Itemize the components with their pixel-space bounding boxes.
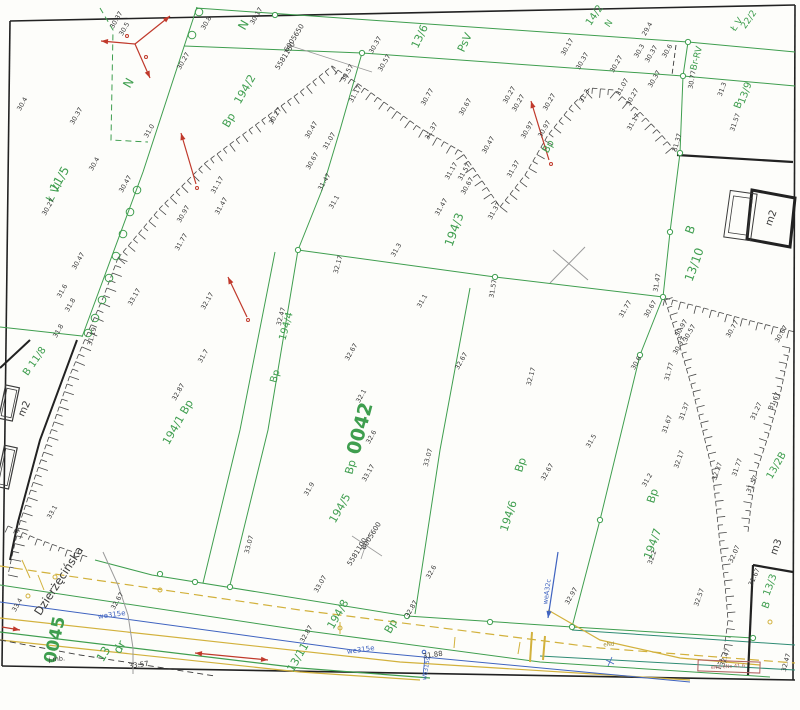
tree-circle	[126, 208, 134, 216]
map-label: 30.27	[267, 106, 283, 126]
slope-hatch-tick	[559, 121, 563, 124]
map-label: 30.47	[303, 120, 319, 140]
parcel-label: 194/5	[326, 491, 353, 525]
slope-hatch-tick	[725, 314, 727, 322]
boundary-node	[597, 517, 602, 522]
slope-hatch-tick	[655, 136, 662, 142]
map-label: 32.07	[727, 544, 742, 564]
slope-hatch-tick	[769, 417, 774, 418]
slope-hatch-tick	[718, 312, 719, 317]
slope-hatch-tick	[19, 528, 29, 530]
slope-hatch-tick	[199, 169, 203, 173]
map-label: 31.77	[663, 361, 676, 381]
boundary-node	[157, 571, 162, 576]
slope-hatch-tick	[682, 352, 687, 353]
slope-hatch-tick	[379, 102, 384, 109]
slope-hatch-tick	[703, 429, 708, 430]
slope-hatch-tick	[727, 629, 735, 630]
slope-hatch-tick	[708, 452, 716, 454]
map-line	[298, 250, 663, 297]
slope-hatch-tick	[28, 498, 37, 501]
slope-hatch-tick	[701, 421, 709, 423]
slope-hatch-tick	[714, 485, 722, 486]
slope-hatch-tick	[764, 424, 772, 426]
map-label: 30.77	[724, 319, 740, 339]
slope-hatch-tick	[50, 544, 52, 551]
slope-hatch-tick	[170, 198, 176, 204]
slope-hatch-tick	[58, 547, 60, 551]
boundary-node	[272, 12, 277, 17]
slope-hatch-tick	[112, 273, 121, 277]
map-label: 32.87	[403, 599, 419, 619]
map-label: 30.27	[541, 92, 557, 112]
parcel-label: 13/3	[762, 573, 780, 598]
map-label: 31.7	[196, 348, 210, 365]
map-label: 31.07	[614, 77, 630, 97]
map-label: 31.1	[415, 293, 429, 310]
slope-hatch-tick	[771, 327, 773, 335]
slope-hatch-tick	[694, 306, 696, 314]
map-label: 30.47	[117, 174, 133, 194]
slope-hatch-tick	[537, 154, 545, 158]
map-label: 32.67	[453, 351, 469, 371]
slope-hatch-tick	[779, 362, 787, 364]
slope-hatch-tick	[11, 559, 21, 561]
map-label: 30.37	[367, 35, 383, 55]
slope-hatch-tick	[780, 370, 785, 371]
slope-hatch-tick	[31, 490, 37, 492]
tree-circle	[188, 31, 196, 39]
map-line	[540, 656, 795, 670]
map-label: j.mb.	[47, 654, 65, 663]
map-label: Dzierżęcińska	[31, 544, 86, 618]
map-label: 31.37	[671, 132, 684, 152]
map-label: 31.2	[640, 472, 654, 489]
slope-hatch-tick	[217, 154, 222, 161]
map-label: 30.37	[646, 69, 662, 89]
map-label: 31.57	[745, 474, 760, 494]
symbol-circle	[26, 594, 30, 598]
slope-hatch-tick	[23, 513, 32, 516]
parcel-label: Bp	[382, 617, 401, 636]
slope-hatch-tick	[723, 572, 728, 573]
slope-hatch-tick	[20, 532, 23, 538]
slope-hatch-tick	[782, 346, 790, 348]
slope-hatch-tick	[653, 130, 657, 134]
map-label: 5581100	[346, 537, 369, 568]
slope-hatch-band	[665, 300, 728, 668]
slope-hatch-tick	[726, 596, 734, 597]
map-label: 31.17	[209, 175, 225, 195]
map-label: 32.17	[525, 366, 538, 386]
slope-hatch-tick	[727, 612, 735, 613]
symbol-circle	[126, 35, 129, 38]
slope-hatch-tick	[754, 454, 762, 457]
slope-hatch-tick	[686, 367, 691, 368]
map-line	[518, 642, 520, 654]
slope-hatch-tick	[154, 215, 158, 219]
slope-hatch-tick	[744, 526, 749, 527]
map-label: 31.6	[55, 283, 69, 300]
slope-hatch-tick	[433, 138, 437, 146]
map-line	[288, 45, 372, 72]
map-label: 32.17	[332, 254, 345, 274]
slope-hatch-tick	[500, 207, 507, 213]
map-label: 31.3	[716, 81, 728, 97]
map-line	[38, 575, 44, 590]
parcel-label: 194/8	[324, 597, 351, 631]
map-label: 31.47	[213, 196, 229, 216]
map-label: 32.27	[710, 461, 724, 481]
map-label: 32.6	[424, 564, 438, 581]
slope-hatch-tick	[484, 194, 491, 199]
slope-hatch-tick	[255, 125, 260, 132]
slope-hatch-tick	[230, 144, 235, 151]
slope-hatch-tick	[777, 386, 782, 387]
slope-hatch-tick	[709, 310, 711, 318]
map-line	[10, 340, 77, 560]
slope-hatch-tick	[313, 82, 317, 86]
slope-hatch-tick	[776, 378, 784, 380]
arrow-head	[546, 611, 551, 618]
parcel-label: 13/6	[409, 23, 431, 51]
slope-hatch-tick	[702, 308, 703, 313]
map-line	[2, 21, 10, 666]
slope-hatch-tick	[76, 362, 85, 366]
boundary-node	[227, 584, 232, 589]
slope-hatch-tick	[749, 321, 750, 326]
map-label: 31.3	[389, 242, 403, 259]
map-label: 31.8	[63, 297, 77, 314]
arrow-line	[181, 133, 196, 184]
slope-hatch-tick	[176, 192, 180, 196]
slope-hatch-tick	[123, 252, 127, 256]
slope-hatch-tick	[243, 135, 248, 142]
map-label: we315e	[97, 609, 126, 621]
map-line	[793, 5, 795, 680]
map-line	[0, 327, 82, 336]
map-label: 30.77	[686, 70, 697, 90]
slope-hatch-tick	[699, 414, 704, 415]
map-label: 31.9	[302, 481, 316, 498]
map-label: 33.17	[360, 463, 376, 483]
boundary-node	[685, 39, 690, 44]
map-label: eNd	[603, 642, 614, 649]
map-label: 29.4	[640, 21, 654, 38]
slope-hatch-tick	[400, 116, 403, 121]
map-label: 32.17	[672, 449, 686, 469]
slope-hatch-tick	[159, 209, 166, 215]
map-label: 30.6	[660, 43, 674, 60]
map-label: 30.5	[117, 21, 131, 38]
map-label: 30.27	[40, 197, 56, 217]
slope-hatch-tick	[663, 142, 667, 146]
map-line	[203, 252, 275, 583]
slope-hatch-tick	[46, 445, 52, 447]
slope-hatch-tick	[307, 87, 313, 94]
slope-hatch-tick	[36, 475, 42, 477]
parcel-label: N	[603, 18, 615, 29]
slope-hatch-tick	[505, 200, 509, 203]
slope-hatch-tick	[482, 187, 487, 190]
boundary-node	[295, 247, 300, 252]
parcel-label: 194/6	[498, 499, 520, 533]
slope-hatch-tick	[325, 72, 329, 76]
parcel-label: 194/3	[442, 211, 467, 248]
tree-circle	[195, 8, 203, 16]
slope-hatch-tick	[672, 321, 677, 323]
slope-hatch-band	[118, 66, 676, 258]
map-label: 31.67	[767, 391, 782, 411]
parcel-label: 194/1 Bp	[160, 397, 196, 447]
slope-hatch-tick	[695, 398, 700, 399]
map-line	[677, 155, 793, 162]
map-label: 31.47	[316, 172, 332, 192]
slope-hatch-tick	[41, 460, 47, 462]
slope-hatch-tick	[392, 111, 397, 118]
map-line	[663, 42, 688, 297]
slope-hatch-tick	[473, 174, 478, 177]
map-label: 30.97	[175, 204, 191, 224]
map-label: 31.67	[660, 414, 674, 434]
map-label: 33.17	[126, 287, 142, 307]
slope-hatch-tick	[35, 539, 37, 546]
slope-hatch-tick	[600, 89, 601, 98]
slope-hatch-tick	[667, 306, 672, 308]
symbol-circle	[550, 163, 553, 166]
slope-hatch-tick	[28, 536, 30, 540]
slope-hatch-tick	[455, 150, 458, 155]
map-label: 32.67	[539, 462, 555, 482]
slope-hatch-tick	[49, 437, 58, 440]
map-label: m3	[769, 538, 785, 557]
slope-hatch-tick	[98, 310, 104, 313]
boundary-node	[660, 294, 665, 299]
slope-hatch-tick	[82, 347, 91, 351]
slope-hatch-tick	[15, 544, 25, 546]
map-label: 30.4	[15, 96, 29, 113]
slope-hatch-tick	[684, 359, 692, 361]
parcel-label: N	[120, 76, 137, 91]
map-label: 30.37	[574, 51, 590, 71]
slope-hatch-tick	[554, 128, 561, 134]
parcel-label: 194/2	[231, 72, 258, 106]
boundary-node	[750, 635, 755, 640]
slope-hatch-tick	[549, 134, 553, 137]
slope-hatch-tick	[456, 155, 463, 160]
slope-hatch-tick	[670, 313, 678, 315]
slope-hatch-tick	[319, 77, 325, 84]
slope-hatch-tick	[679, 302, 681, 310]
slope-hatch-tick	[743, 502, 751, 503]
slope-hatch-tick	[387, 107, 390, 112]
map-label: 30.67	[304, 151, 320, 171]
slope-hatch-tick	[133, 240, 137, 244]
boundary-node	[487, 619, 492, 624]
parcel-label: Bp	[644, 487, 661, 505]
parcel-label: B	[760, 600, 773, 610]
slope-hatch-tick	[716, 500, 724, 501]
slope-hatch-tick	[693, 390, 701, 392]
map-label: 33.1	[45, 504, 59, 521]
map-label: 32.67	[343, 342, 359, 362]
parcel-label: Bp	[269, 369, 283, 385]
slope-hatch-tick	[79, 354, 85, 356]
boundary-node	[492, 274, 497, 279]
map-label: 32.97	[563, 586, 579, 606]
map-label: 31.77	[173, 232, 189, 252]
slope-hatch-tick	[728, 621, 733, 622]
map-label: 30.27	[175, 51, 191, 71]
slope-hatch-tick	[759, 439, 767, 442]
symbol-circle	[145, 56, 148, 59]
map-label: 31.77	[617, 299, 633, 319]
slope-hatch-tick	[33, 482, 42, 485]
slope-hatch-tick	[67, 384, 73, 386]
map-line	[572, 297, 663, 627]
slope-hatch-tick	[236, 139, 239, 143]
map-label: 30.67	[457, 97, 473, 117]
map-label: 30.77	[419, 87, 435, 107]
slope-hatch-tick	[705, 437, 713, 439]
parcel-label: 0042	[343, 400, 378, 457]
slope-hatch-tick	[182, 186, 188, 192]
boundary-node	[667, 229, 672, 234]
slope-hatch-tick	[44, 452, 53, 455]
slope-hatch-tick	[687, 304, 688, 309]
arrow-head	[228, 277, 233, 284]
boundary-node	[680, 73, 685, 78]
slope-hatch-tick	[300, 92, 304, 96]
map-label: 30.97	[536, 119, 552, 139]
slope-hatch-tick	[722, 564, 730, 565]
map-label: 31.37	[677, 401, 691, 421]
slope-hatch-band	[748, 348, 790, 532]
map-label: 30.37	[68, 106, 84, 126]
slope-hatch-tick	[754, 462, 759, 464]
map-label: 32.57	[692, 587, 706, 607]
slope-hatch-tick	[8, 575, 18, 577]
map-line	[2, 666, 795, 680]
arrow-head	[13, 626, 20, 631]
map-label: 30.57	[376, 53, 392, 73]
slope-hatch-tick	[515, 188, 519, 191]
map-label: 31.3	[577, 88, 591, 105]
slope-hatch-tick	[43, 542, 45, 546]
slope-hatch-tick	[719, 532, 727, 533]
slope-hatch-tick	[645, 124, 652, 130]
parcel-label: Bp	[220, 111, 239, 130]
map-line	[530, 632, 532, 662]
map-line	[454, 637, 455, 648]
slope-hatch-tick	[715, 493, 720, 494]
slope-hatch-tick	[722, 556, 727, 557]
slope-hatch-tick	[73, 369, 79, 371]
map-line	[22, 560, 30, 578]
map-label: 32.1	[354, 388, 368, 405]
slope-hatch-tick	[446, 146, 450, 154]
slope-hatch-tick	[115, 265, 121, 267]
slope-hatch-tick	[574, 103, 580, 110]
slope-hatch-tick	[21, 520, 27, 522]
slope-hatch-tick	[405, 121, 410, 128]
slope-hatch-tick	[749, 470, 757, 471]
slope-hatch-tick	[742, 518, 750, 519]
boundary-node	[569, 624, 574, 629]
boundary-node	[359, 50, 364, 55]
map-line	[415, 288, 470, 614]
slope-hatch-tick	[59, 407, 68, 410]
slope-hatch-tick	[745, 510, 750, 511]
slope-hatch-tick	[706, 445, 711, 446]
slope-hatch-tick	[564, 115, 571, 121]
slope-hatch-tick	[70, 376, 79, 379]
slope-hatch-tick	[374, 97, 377, 102]
cadastral-map: NN194/2Bp13/6PsV14/2NŁ V22/2Br-RV13/9B11…	[0, 0, 800, 710]
map-label: 30.27	[624, 87, 640, 107]
slope-hatch-tick	[366, 93, 371, 100]
map-line	[298, 53, 362, 250]
slope-hatch-tick	[759, 447, 764, 449]
slope-hatch-tick	[756, 323, 758, 331]
map-label: 31.27	[749, 401, 764, 421]
map-label: 31.5	[584, 433, 598, 450]
map-label: 30.17	[559, 37, 575, 57]
parcel-label: B	[682, 223, 698, 236]
slope-hatch-tick	[64, 392, 73, 395]
map-label: 31.37	[505, 159, 521, 179]
slope-hatch-tick	[697, 405, 705, 407]
slope-hatch-tick	[51, 429, 57, 431]
slope-hatch-tick	[710, 461, 715, 462]
parcel-label: Bp	[342, 458, 358, 475]
slope-hatch-tick	[413, 125, 416, 130]
slope-hatch-tick	[62, 399, 68, 401]
slope-hatch-tick	[262, 120, 265, 124]
slope-hatch-tick	[525, 175, 529, 178]
parcel-label: Br-RV	[689, 45, 705, 72]
slope-hatch-tick	[223, 149, 226, 153]
parcel-label: B 11/8	[21, 345, 49, 378]
slope-hatch-tick	[740, 319, 742, 327]
map-line	[553, 250, 588, 280]
map-line	[82, 7, 197, 337]
arrow-head	[180, 133, 185, 140]
map-label: 32.17	[199, 291, 215, 311]
map-label: 30.47	[480, 135, 496, 155]
map-label: 31.17	[347, 84, 363, 104]
slope-hatch-tick	[569, 109, 573, 112]
parcel-label: PsV	[455, 30, 475, 54]
slope-hatch-tick	[5, 526, 8, 532]
tree-circle	[112, 252, 120, 260]
map-label: 32.87	[298, 624, 314, 644]
parcel-label: 13/10	[682, 246, 707, 283]
slope-hatch-tick	[107, 288, 116, 292]
slope-hatch-tick	[249, 130, 252, 134]
map-label: we315e	[346, 644, 375, 656]
slope-hatch-tick	[689, 374, 697, 376]
slope-hatch-tick	[631, 107, 635, 111]
slope-hatch-tick	[287, 101, 290, 105]
slope-hatch-tick	[672, 300, 673, 305]
arrow-head	[531, 101, 536, 108]
map-label: 31.47	[433, 197, 449, 217]
map-label: 30.27	[608, 54, 624, 74]
arrow-head	[145, 71, 150, 78]
slope-hatch-tick	[165, 203, 169, 207]
slope-hatch-tick	[57, 414, 63, 416]
